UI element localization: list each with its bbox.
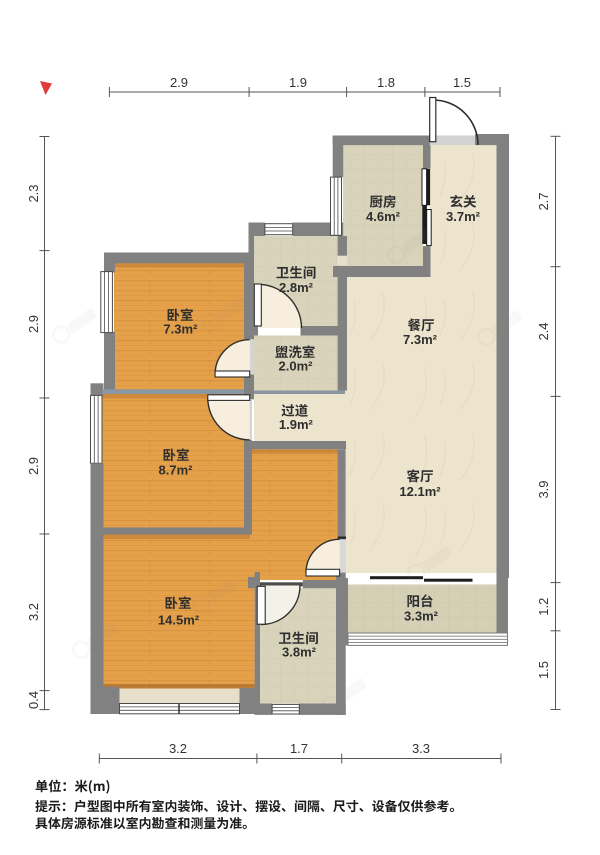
svg-text:7.3m²: 7.3m² (163, 322, 198, 337)
svg-text:1.5: 1.5 (453, 75, 471, 90)
svg-text:3.8m²: 3.8m² (282, 645, 317, 660)
svg-text:1.7: 1.7 (290, 741, 308, 756)
svg-text:2.9: 2.9 (26, 457, 41, 475)
svg-text:2.3: 2.3 (26, 184, 41, 202)
svg-text:1.9: 1.9 (289, 75, 307, 90)
svg-text:3.3: 3.3 (412, 741, 430, 756)
svg-text:14.5m²: 14.5m² (158, 613, 200, 628)
svg-text:8.7m²: 8.7m² (159, 463, 194, 478)
svg-text:1.8: 1.8 (377, 75, 395, 90)
svg-text:3.2: 3.2 (26, 603, 41, 621)
svg-text:2.0m²: 2.0m² (279, 359, 314, 374)
svg-text:2.4: 2.4 (536, 322, 551, 340)
svg-text:1.5: 1.5 (536, 661, 551, 679)
svg-text:2.8m²: 2.8m² (279, 280, 314, 295)
svg-text:3.3m²: 3.3m² (404, 609, 439, 624)
svg-text:0.4: 0.4 (26, 691, 41, 709)
svg-text:4.6m²: 4.6m² (366, 209, 401, 224)
svg-text:3.2: 3.2 (169, 741, 187, 756)
svg-text:1.9m²: 1.9m² (279, 417, 314, 432)
svg-text:3.7m²: 3.7m² (446, 209, 481, 224)
svg-text:2.7: 2.7 (536, 192, 551, 210)
svg-text:12.1m²: 12.1m² (399, 484, 441, 499)
svg-text:2.9: 2.9 (170, 75, 188, 90)
svg-text:3.9: 3.9 (536, 480, 551, 498)
svg-text:2.9: 2.9 (26, 315, 41, 333)
svg-text:7.3m²: 7.3m² (403, 332, 438, 347)
svg-text:1.2: 1.2 (536, 598, 551, 616)
